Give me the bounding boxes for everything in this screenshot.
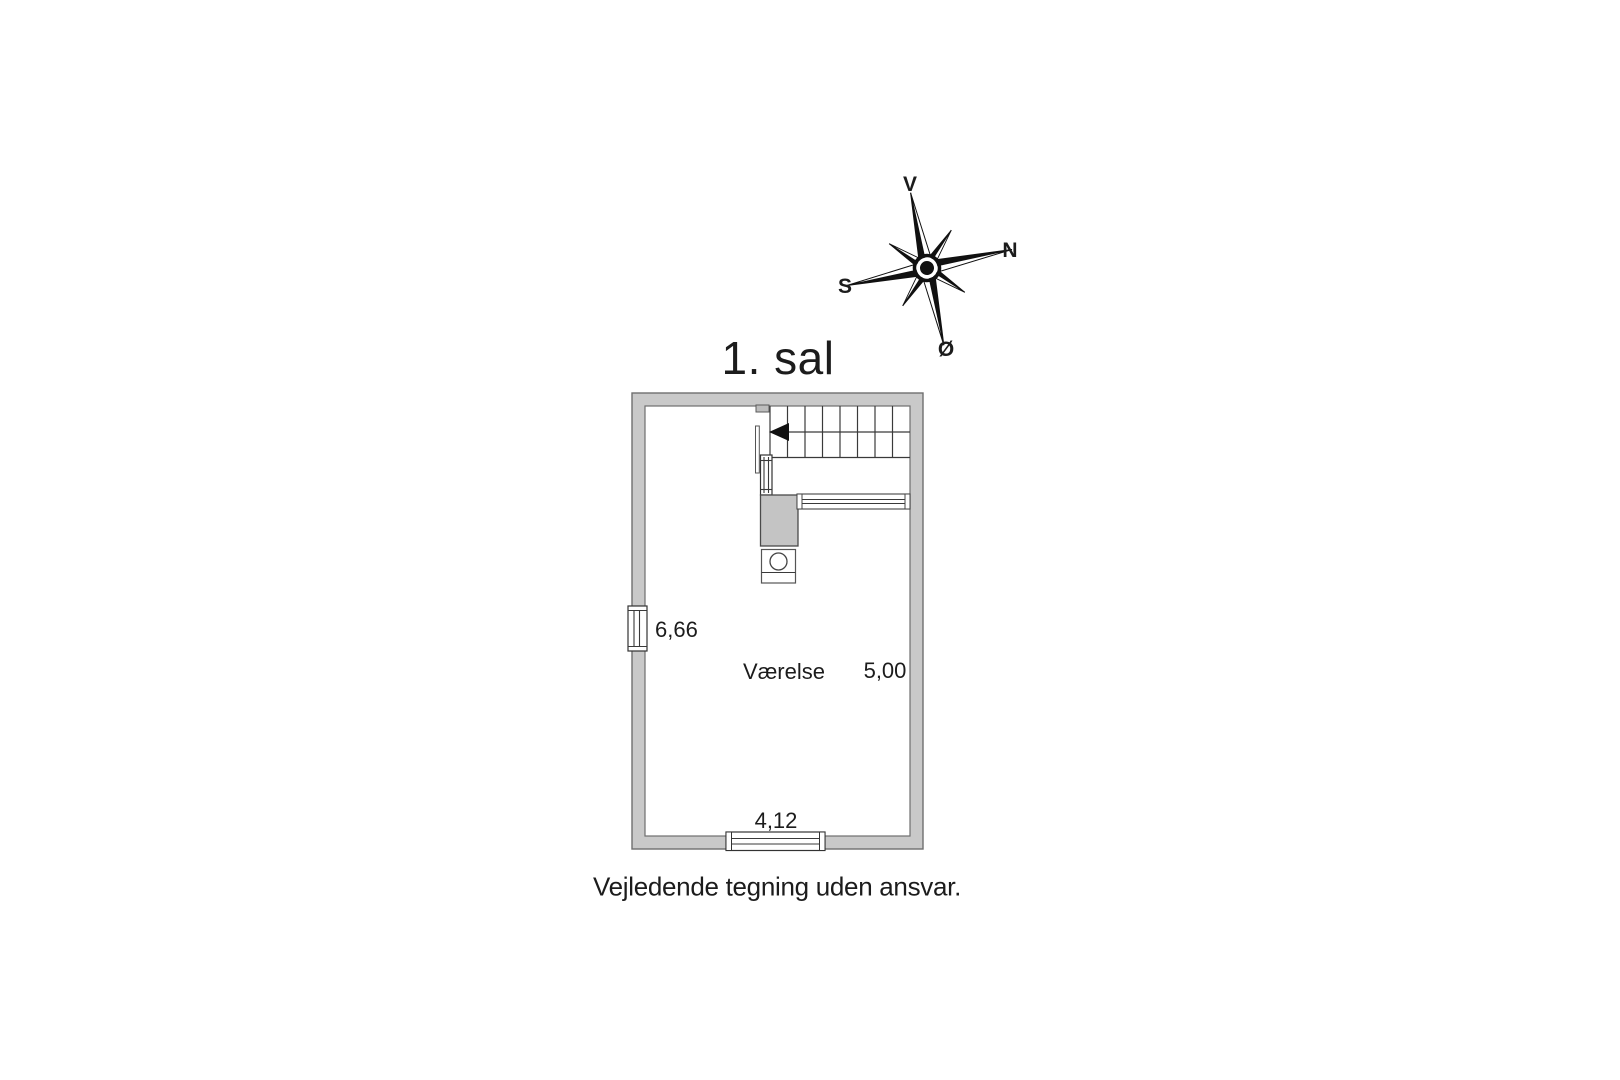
floor-plan-drawing [0,0,1620,1080]
compass-label-west: V [903,173,917,197]
compass-label-east: Ø [938,338,954,362]
compass-label-south: S [838,275,852,299]
chimney-block [761,495,799,546]
stair-railing-post [756,426,760,473]
dimension-left: 6,66 [655,617,698,643]
dimension-bottom: 4,12 [755,808,798,834]
compass-label-north: N [1002,239,1017,263]
window-left [628,606,647,651]
room-label: Værelse [743,659,825,685]
stair-door-frame [761,455,773,495]
window-bottom [726,832,825,851]
fixture [762,550,796,584]
compass-rose-icon [830,174,1028,362]
wall-stub [756,405,769,412]
floor-plan-page: V N S Ø 1. sal 6,66 Værelse 5,00 4,12 Ve… [0,0,1620,1080]
floor-title: 1. sal [722,331,835,385]
dimension-right: 5,00 [864,658,907,684]
stair-landing-railing [797,494,910,509]
disclaimer-text: Vejledende tegning uden ansvar. [593,872,961,903]
